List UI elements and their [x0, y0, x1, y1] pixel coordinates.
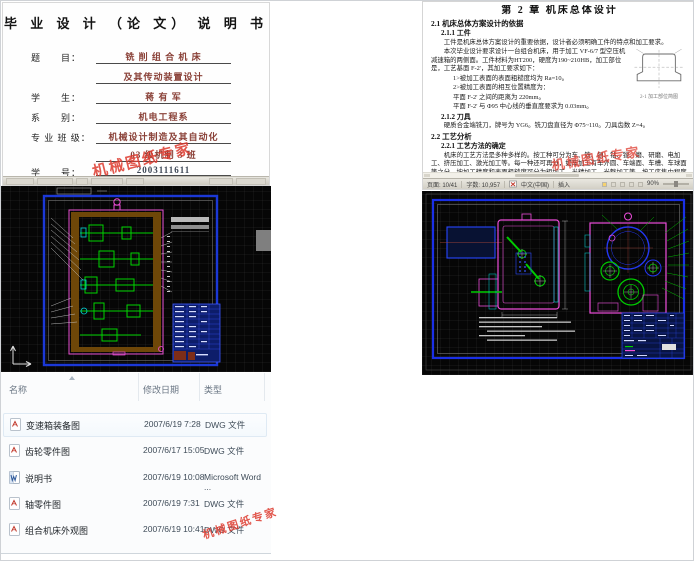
field-value: 机械设计制造及其自动化: [96, 130, 231, 144]
file-type: DWG 文件: [204, 445, 244, 457]
column-header-type[interactable]: 类型: [204, 383, 222, 396]
status-chip: [37, 178, 73, 185]
file-name: 变速箱装备图: [26, 419, 80, 432]
cover-field-title: 题 目： 铣 削 组 合 机 床: [31, 51, 259, 65]
file-name: 轴零件图: [25, 498, 61, 511]
zoom-slider[interactable]: [663, 183, 689, 185]
view-web-layout-button[interactable]: [620, 182, 625, 187]
status-chip: [76, 178, 88, 185]
insert-mode[interactable]: 插入: [558, 180, 570, 189]
cover-status-bar: [3, 176, 269, 185]
cad-assembly-screenshot: [1, 186, 271, 372]
field-value: 蒋 有 军: [96, 90, 231, 104]
file-row[interactable]: 轴零件图 2007/6/19 7:31 DWG 文件: [3, 493, 267, 515]
parts-list-table: [173, 304, 220, 362]
field-label: 系 别：: [31, 111, 81, 124]
status-chip: [6, 178, 34, 185]
screenshot-collage: 毕 业 设 计 （论 文） 说 明 书 题 目： 铣 削 组 合 机 床 及其传…: [0, 0, 694, 561]
file-date: 2007/6/19 7:31: [143, 498, 200, 508]
status-chip: [236, 178, 266, 185]
field-value: 及其传动装置设计: [96, 70, 231, 84]
divider: [504, 181, 505, 188]
page-indicator[interactable]: 页面: 10/41: [427, 180, 457, 189]
field-value: 2003111611: [96, 165, 231, 176]
divider: [461, 181, 462, 188]
dwg-file-icon: [9, 523, 20, 536]
file-name: 说明书: [25, 472, 52, 485]
status-chip: [126, 178, 144, 185]
thesis-cover-page: 毕 业 设 计 （论 文） 说 明 书 题 目： 铣 削 组 合 机 床 及其传…: [2, 2, 270, 186]
sort-arrow-icon: [69, 376, 75, 380]
file-row[interactable]: 说明书 2007/6/19 10:08 Microsoft Word ...: [3, 467, 267, 489]
title-block-table: [622, 313, 684, 358]
section-2-1-2: 2.1.2 刀具: [441, 113, 688, 122]
figure-caption: 2-1 加工部位简图: [630, 94, 688, 103]
cover-field-department: 系 别： 机电工程系: [31, 111, 259, 125]
dwg-file-icon: [9, 444, 20, 457]
column-header-name[interactable]: 名称: [9, 383, 27, 396]
assembly-drawing-canvas: [1, 186, 271, 372]
column-divider[interactable]: [199, 373, 200, 401]
file-list-header: 名称 修改日期 类型: [1, 373, 271, 401]
column-divider[interactable]: [264, 373, 265, 401]
paragraph: 工件是机床总体方案设计的重要依据，设计者必须明确工件的特点和加工要求。: [431, 39, 688, 48]
file-row[interactable]: 组合机床外观图 2007/6/19 10:41 DWG 文件: [3, 519, 267, 541]
zoom-level[interactable]: 90%: [647, 181, 659, 187]
cover-field-major: 专 业 班 级： 机械设计制造及其自动化: [31, 131, 259, 145]
field-value: 铣 削 组 合 机 床: [96, 50, 231, 64]
cover-title: 毕 业 设 计 （论 文） 说 明 书: [3, 13, 269, 32]
status-chip: [209, 178, 233, 185]
field-label: 题 目：: [31, 51, 81, 64]
file-date: 2007/6/19 10:08: [143, 472, 204, 482]
file-list-panel: 名称 修改日期 类型 变速箱装备图 2007/6/19 7:28 DWG 文件: [1, 373, 271, 554]
cover-field-student: 学 生： 蒋 有 军: [31, 91, 259, 105]
file-name: 齿轮零件图: [25, 445, 70, 458]
file-type: DWG 文件: [205, 419, 245, 431]
view-outline-button[interactable]: [629, 182, 634, 187]
file-row[interactable]: 变速箱装备图 2007/6/19 7:28 DWG 文件: [3, 413, 267, 437]
file-name: 组合机床外观图: [25, 524, 88, 537]
language-indicator[interactable]: 中文(中国): [521, 180, 549, 189]
file-type: DWG 文件: [204, 524, 244, 536]
word-count[interactable]: 字数: 10,957: [466, 180, 500, 189]
word-status-bar: 页面: 10/41 字数: 10,957 中文(中国) 插入 90%: [423, 178, 693, 189]
cover-field-title2: 及其传动装置设计: [31, 71, 259, 85]
paragraph: 硬质合金端铣刀，牌号为 YG6。铣刀盘直径为 Φ75~110。刀具齿数 Z=4。: [431, 122, 688, 131]
list-item: 平面 F-2' 与 Φ95 中心线的垂直度要求为 0.03mm。: [453, 103, 688, 112]
section-2-1-1: 2.1.1 工件: [441, 29, 688, 38]
view-fullscreen-button[interactable]: [611, 182, 616, 187]
view-draft-button[interactable]: [638, 182, 643, 187]
outline-drawing-canvas: [422, 191, 694, 375]
field-label: 专 业 班 级：: [31, 131, 91, 144]
dwg-file-icon: [10, 418, 21, 431]
scroll-right-arrow[interactable]: [686, 174, 692, 177]
file-type: DWG 文件: [204, 498, 244, 510]
cad-outline-screenshot: [422, 191, 694, 375]
scroll-left-arrow[interactable]: [424, 174, 430, 177]
chapter-title: 第 2 章 机床总体设计: [431, 7, 688, 16]
file-type: Microsoft Word ...: [204, 472, 267, 492]
column-divider[interactable]: [138, 373, 139, 401]
workpiece-figure: 2-1 加工部位简图: [630, 49, 688, 102]
section-2-2-1: 2.2.1 工艺方法的确定: [441, 142, 688, 151]
word-file-icon: [9, 471, 20, 484]
ucs-icon: [11, 346, 32, 367]
file-date: 2007/6/19 7:28: [144, 419, 201, 429]
cover-field-class: 03 级机制 3 班: [31, 149, 259, 163]
status-spacer: [147, 178, 206, 184]
proofing-icon[interactable]: [509, 180, 517, 188]
chapter-body: 第 2 章 机床总体设计 2.1 机床总体方案设计的依据 2.1.1 工件 工件…: [431, 5, 688, 172]
field-value: 机电工程系: [96, 110, 231, 124]
dwg-file-icon: [9, 497, 20, 510]
file-date: 2007/6/19 10:41: [143, 524, 204, 534]
file-row[interactable]: 齿轮零件图 2007/6/17 15:05 DWG 文件: [3, 440, 267, 462]
section-2-1: 2.1 机床总体方案设计的依据: [431, 20, 688, 29]
status-chip: [91, 178, 123, 185]
section-2-2: 2.2 工艺分析: [431, 133, 688, 142]
column-header-date[interactable]: 修改日期: [143, 383, 179, 396]
workpiece-sketch: [630, 49, 688, 89]
paragraph: 机床的工艺方法是多种多样的。按工种可分为车、铣、刨、钻、镗、磨、研磨、电加工、挤…: [431, 152, 688, 173]
thesis-chapter-page: 第 2 章 机床总体设计 2.1 机床总体方案设计的依据 2.1.1 工件 工件…: [422, 1, 694, 190]
scrollbar-thumb[interactable]: [515, 174, 579, 177]
zoom-slider-thumb[interactable]: [674, 181, 678, 187]
field-value: 03 级机制 3 班: [96, 148, 231, 162]
divider: [553, 181, 554, 188]
file-date: 2007/6/17 15:05: [143, 445, 204, 455]
field-label: 学 生：: [31, 91, 81, 104]
view-print-layout-button[interactable]: [602, 182, 607, 187]
